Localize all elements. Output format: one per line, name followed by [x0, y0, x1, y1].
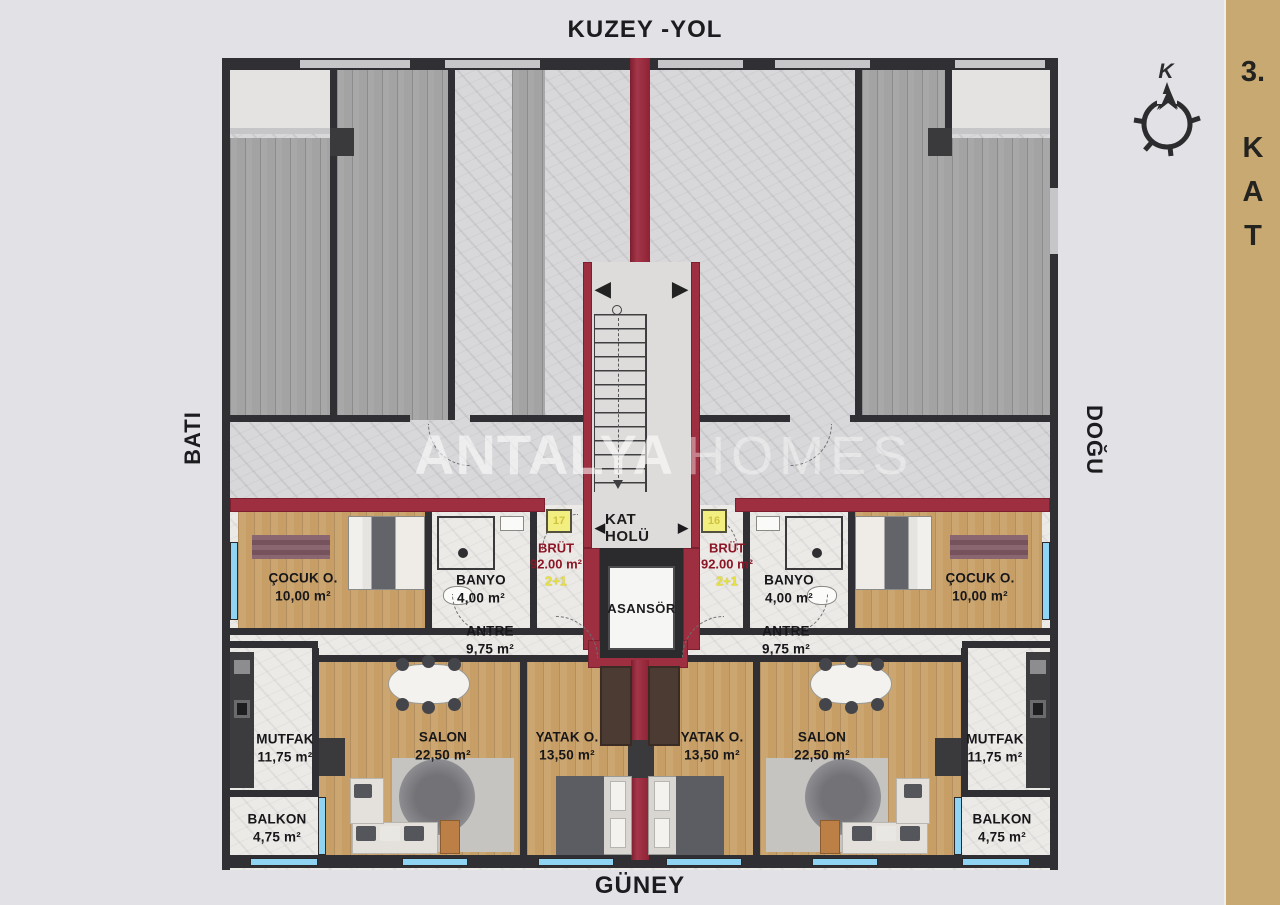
red-wall-segment: [735, 498, 1050, 512]
bed-furniture: [855, 516, 932, 590]
room-label-mutfak-left: MUTFAK 11,75 m²: [256, 730, 313, 765]
chair-furniture: [845, 655, 858, 668]
room-label-cocuk-left: ÇOCUK O. 10,00 m²: [268, 569, 337, 604]
stair-direction-arrow: [613, 480, 623, 489]
shower-furniture: [437, 516, 495, 570]
wall-segment: [690, 628, 1050, 635]
window-strip: [775, 60, 870, 68]
pillow: [610, 781, 626, 811]
window-strip: [666, 858, 742, 866]
sofa-cushion: [404, 826, 424, 841]
floor-letter-t: T: [1244, 220, 1262, 253]
room-name: ANTRE: [762, 622, 810, 640]
wall-segment: [848, 512, 855, 635]
floor-letter-a: A: [1243, 176, 1264, 209]
floor-tab: 3. K A T: [1224, 0, 1280, 905]
bed-blanket: [676, 776, 724, 855]
wall-segment: [230, 415, 410, 422]
room-area: 22,50 m²: [794, 746, 850, 764]
room-name: ÇOCUK O.: [268, 569, 337, 587]
wall-segment: [230, 628, 590, 635]
room-area: 13,50 m²: [681, 746, 744, 764]
west-label: BATI: [180, 411, 206, 465]
chair-furniture: [819, 698, 832, 711]
door-number-badge-right: 16: [701, 509, 727, 533]
outer-wall-west: [222, 58, 230, 870]
brut-label: BRÜT: [701, 541, 753, 557]
outer-wall-east: [1050, 58, 1058, 870]
wall-segment: [425, 512, 432, 635]
rug-furniture: [252, 535, 330, 559]
pillow: [654, 781, 670, 811]
red-wall-segment: [630, 58, 650, 262]
chair-furniture: [396, 698, 409, 711]
pillow: [654, 818, 670, 848]
plan-type: 2+1: [530, 573, 582, 589]
column-pillar: [330, 128, 354, 156]
room-label-banyo-left: BANYO 4,00 m²: [456, 571, 506, 606]
north-road-label: KUZEY -YOL: [568, 16, 723, 44]
chair-furniture: [819, 658, 832, 671]
floor-hall-label-row: ◀ KAT HOLÜ ▶: [592, 510, 691, 546]
wall-segment: [312, 648, 319, 797]
balcony-sill: [230, 128, 330, 134]
column-pillar: [928, 128, 952, 156]
room-area: 11,75 m²: [256, 748, 313, 766]
room-name: YATAK O.: [681, 728, 744, 746]
chair-furniture: [448, 698, 461, 711]
upper-room-wood: [230, 138, 330, 420]
window-strip: [402, 858, 468, 866]
room-area: 4,75 m²: [248, 828, 307, 846]
bed-furniture: [348, 516, 425, 590]
wall-segment: [961, 648, 968, 797]
wardrobe-furniture: [648, 666, 680, 746]
balcony-glass: [954, 797, 962, 855]
wall-segment: [470, 415, 583, 422]
hall-label: KAT HOLÜ: [605, 511, 678, 545]
window-strip: [538, 858, 614, 866]
room-name: YATAK O.: [536, 728, 599, 746]
balcony-glass: [318, 797, 326, 855]
stair-start-marker: [612, 305, 622, 315]
wall-segment: [448, 70, 455, 420]
upper-room-wood: [862, 70, 952, 420]
room-name: SALON: [794, 728, 850, 746]
room-name: ÇOCUK O.: [945, 569, 1014, 587]
wall-segment: [855, 70, 862, 420]
stove-furniture: [1030, 700, 1046, 718]
room-name: BALKON: [248, 810, 307, 828]
chair-furniture: [396, 658, 409, 671]
elevator-label: ASANSÖR: [608, 566, 675, 650]
room-area: 4,00 m²: [764, 589, 814, 607]
room-label-yatak-right: YATAK O. 13,50 m²: [681, 728, 744, 763]
room-name: SALON: [415, 728, 471, 746]
column-pillar: [319, 738, 345, 776]
wall-segment: [228, 790, 318, 797]
stair-arrow-left-icon: ◀: [595, 277, 610, 302]
compass-icon: [1130, 80, 1204, 158]
stove-furniture: [234, 700, 250, 718]
sofa-cushion: [356, 826, 376, 841]
side-table-furniture: [820, 820, 840, 854]
room-area: 13,50 m²: [536, 746, 599, 764]
window-strip: [230, 542, 238, 620]
brut-area: 92.00 m²: [530, 557, 582, 573]
rug-furniture: [950, 535, 1028, 559]
chair-furniture: [422, 655, 435, 668]
sofa-cushion: [354, 784, 372, 798]
room-area: 4,00 m²: [456, 589, 506, 607]
room-label-antre-right: ANTRE 9,75 m²: [762, 622, 810, 657]
side-table-furniture: [440, 820, 460, 854]
stair-path-line: [618, 318, 619, 478]
floor-number: 3.: [1241, 56, 1265, 89]
compass-north-letter: K: [1158, 60, 1173, 84]
red-wall-segment: [691, 262, 700, 548]
sink-furniture: [756, 516, 780, 531]
wall-segment: [850, 415, 1050, 422]
stair-arrow-right-icon: ▶: [672, 277, 687, 302]
room-label-yatak-left: YATAK O. 13,50 m²: [536, 728, 599, 763]
room-label-salon-left: SALON 22,50 m²: [415, 728, 471, 763]
window-strip: [812, 858, 878, 866]
wall-segment: [228, 641, 318, 648]
wardrobe-furniture: [600, 666, 632, 746]
upper-room-wood: [512, 70, 545, 420]
staircase: [594, 314, 647, 492]
window-strip: [658, 60, 743, 68]
room-name: MUTFAK: [966, 730, 1023, 748]
sofa-cushion: [900, 826, 920, 841]
room-name: BANYO: [764, 571, 814, 589]
kitchen-sink: [234, 660, 250, 674]
room-label-banyo-right: BANYO 4,00 m²: [764, 571, 814, 606]
red-wall-segment: [230, 498, 545, 512]
wall-segment: [962, 641, 1052, 648]
room-name: MUTFAK: [256, 730, 313, 748]
upper-balcony-left: [230, 70, 330, 132]
room-name: BALKON: [973, 810, 1032, 828]
hall-arrow-right-icon: ▶: [678, 520, 688, 536]
pillow: [610, 818, 626, 848]
brut-label: BRÜT: [530, 541, 582, 557]
window-strip: [300, 60, 410, 68]
room-label-mutfak-right: MUTFAK 11,75 m²: [966, 730, 1023, 765]
room-area: 22,50 m²: [415, 746, 471, 764]
room-area: 10,00 m²: [945, 587, 1014, 605]
shower-drain: [458, 548, 468, 558]
room-area: 10,00 m²: [268, 587, 337, 605]
chair-furniture: [422, 701, 435, 714]
upper-room-wood: [337, 70, 448, 420]
plan-type: 2+1: [701, 573, 753, 589]
window-strip: [250, 858, 318, 866]
wall-segment: [700, 415, 790, 422]
room-area: 9,75 m²: [762, 640, 810, 658]
room-label-balkon-left: BALKON 4,75 m²: [248, 810, 307, 845]
window-strip: [1050, 188, 1058, 254]
shower-drain: [812, 548, 822, 558]
upper-room-wood: [952, 138, 1050, 420]
sink-furniture: [500, 516, 524, 531]
upper-balcony-right: [952, 70, 1050, 132]
brut-area: 92.00 m²: [701, 557, 753, 573]
chair-furniture: [871, 658, 884, 671]
wall-segment: [330, 70, 337, 420]
east-label: DOĞU: [1081, 405, 1107, 475]
red-wall-segment: [583, 262, 592, 548]
wall-segment: [753, 662, 760, 855]
room-area: 11,75 m²: [966, 748, 1023, 766]
window-strip: [962, 858, 1030, 866]
floor-plan-canvas: KUZEY -YOL GÜNEY BATI DOĞU K 3. K A T: [0, 0, 1280, 905]
room-label-cocuk-right: ÇOCUK O. 10,00 m²: [945, 569, 1014, 604]
door-number-badge-left: 17: [546, 509, 572, 533]
room-name: BANYO: [456, 571, 506, 589]
shower-furniture: [785, 516, 843, 570]
chair-furniture: [845, 701, 858, 714]
chair-furniture: [871, 698, 884, 711]
room-label-balkon-right: BALKON 4,75 m²: [973, 810, 1032, 845]
chair-furniture: [448, 658, 461, 671]
bed-blanket: [556, 776, 604, 855]
sofa-cushion: [876, 826, 896, 841]
sofa-cushion: [380, 826, 400, 841]
wall-segment: [520, 662, 527, 855]
window-strip: [1042, 542, 1050, 620]
room-label-salon-right: SALON 22,50 m²: [794, 728, 850, 763]
hall-arrow-left-icon: ◀: [595, 520, 605, 536]
sofa-cushion: [852, 826, 872, 841]
floor-letter-k: K: [1243, 132, 1264, 165]
kitchen-sink: [1030, 660, 1046, 674]
room-area: 9,75 m²: [466, 640, 514, 658]
room-area: 4,75 m²: [973, 828, 1032, 846]
wall-segment: [962, 790, 1052, 797]
brut-info-right: BRÜT 92.00 m² 2+1: [701, 541, 753, 590]
window-strip: [445, 60, 540, 68]
column-pillar: [935, 738, 961, 776]
room-name: ANTRE: [466, 622, 514, 640]
window-strip: [955, 60, 1045, 68]
balcony-sill: [952, 128, 1050, 134]
south-label: GÜNEY: [595, 872, 685, 900]
room-label-antre-left: ANTRE 9,75 m²: [466, 622, 514, 657]
brut-info-left: BRÜT 92.00 m² 2+1: [530, 541, 582, 590]
sofa-cushion: [904, 784, 922, 798]
